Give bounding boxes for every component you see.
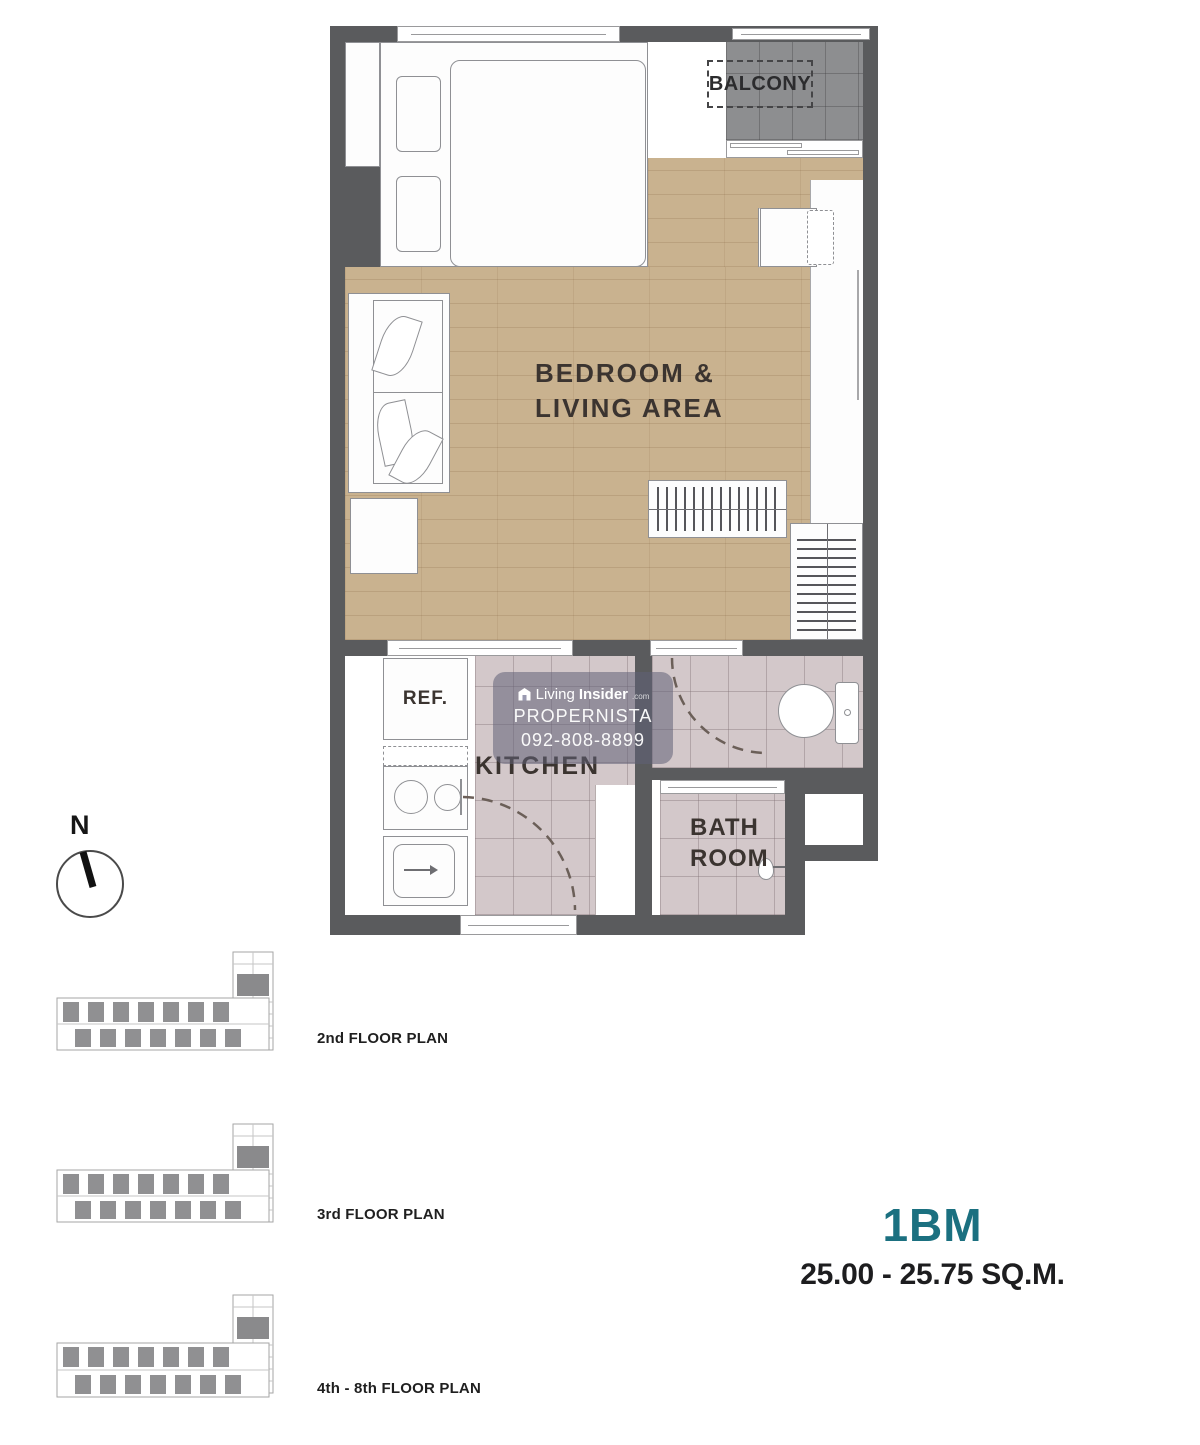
brand-tld: .com xyxy=(632,692,649,703)
bedroom-living-line1: BEDROOM & xyxy=(535,356,724,391)
wall-step-bottom-right xyxy=(785,845,878,861)
refrigerator: REF. xyxy=(383,658,468,740)
wall-left xyxy=(330,26,345,935)
floor-thumbnail-4th-8th-label: 4th - 8th FLOOR PLAN xyxy=(317,1380,481,1397)
faucet-arrow-icon xyxy=(430,865,438,875)
balcony-sliding-door xyxy=(726,140,863,158)
stove xyxy=(383,766,468,830)
unit-info: 1BM 25.00 - 25.75 SQ.M. xyxy=(760,1198,1105,1292)
brand-suffix: Insider xyxy=(579,686,628,703)
brand-prefix: Living xyxy=(536,686,575,703)
floor-thumbnail-2nd xyxy=(55,950,310,1055)
bed-pillow xyxy=(396,76,441,152)
bathroom-label: BATH ROOM xyxy=(690,812,769,874)
toilet-sliding-entry xyxy=(650,640,743,656)
flush-button-icon xyxy=(844,709,851,716)
shower-arm-icon xyxy=(773,866,785,868)
bedroom-living-label: BEDROOM & LIVING AREA xyxy=(535,356,724,426)
desk-rail xyxy=(857,270,859,400)
bed-mattress xyxy=(450,60,646,267)
entry-door-opening xyxy=(460,915,577,935)
unit-floor-plan: REF. BALCONY BEDROOM xyxy=(330,20,878,940)
wardrobe-rail xyxy=(827,524,828,639)
wardrobe-horizontal xyxy=(648,480,787,538)
bedroom-living-line2: LIVING AREA xyxy=(535,391,724,426)
wardrobe-rail xyxy=(649,509,786,510)
stove-burner xyxy=(434,784,461,811)
watermark: LivingInsider.com PROPERNISTA 092-808-88… xyxy=(493,672,673,764)
bedroom-closet xyxy=(345,42,380,167)
sink-basin xyxy=(393,844,455,898)
wall-toilet-bath-divider xyxy=(652,768,863,780)
wall-toilet-bath-stub xyxy=(785,780,863,794)
unit-area-range: 25.00 - 25.75 SQ.M. xyxy=(760,1258,1105,1292)
floor-thumbnail-2nd-label: 2nd FLOOR PLAN xyxy=(317,1030,448,1047)
north-compass: N xyxy=(48,810,132,935)
counter-dashed xyxy=(383,746,468,766)
wall-left-chunk xyxy=(345,167,380,267)
wardrobe-vertical xyxy=(790,523,863,640)
stove-knob-line xyxy=(460,779,462,815)
balcony-label: BALCONY xyxy=(709,73,811,96)
desk-chair xyxy=(807,210,834,265)
toilet-tank xyxy=(835,682,859,744)
wall-right xyxy=(863,26,878,861)
compass-icon xyxy=(48,810,132,935)
floor-plan-page: REF. BALCONY BEDROOM xyxy=(0,0,1200,1445)
kitchen-sliding-window-a xyxy=(387,640,573,656)
watermark-brand: LivingInsider.com xyxy=(493,686,673,703)
faucet-icon xyxy=(404,869,432,871)
wall-bath-right xyxy=(785,794,805,935)
sofa-seat-divider xyxy=(373,392,443,393)
sliding-panel xyxy=(730,143,802,148)
watermark-agency: PROPERNISTA xyxy=(493,706,673,727)
kitchen-sink xyxy=(383,836,468,906)
balcony-railing xyxy=(732,28,870,40)
side-table xyxy=(350,498,418,574)
bathroom-line2: ROOM xyxy=(690,843,769,874)
refrigerator-label: REF. xyxy=(403,688,448,710)
bathroom-line1: BATH xyxy=(690,812,769,843)
bathroom-sliding-door xyxy=(660,780,785,794)
living-insider-logo-icon xyxy=(517,687,532,702)
bedroom-window xyxy=(397,26,620,42)
stove-burner xyxy=(394,780,428,814)
floor-thumbnail-4th-8th xyxy=(55,1293,310,1403)
floor-thumbnail-3rd xyxy=(55,1122,310,1227)
balcony-dashed-zone: BALCONY xyxy=(707,60,813,108)
unit-type-code: 1BM xyxy=(760,1198,1105,1252)
watermark-phone: 092-808-8899 xyxy=(493,730,673,751)
bed-pillow xyxy=(396,176,441,252)
sliding-panel xyxy=(787,150,859,155)
kitchen-door-recess xyxy=(595,785,636,915)
floor-thumbnail-3rd-label: 3rd FLOOR PLAN xyxy=(317,1206,445,1223)
